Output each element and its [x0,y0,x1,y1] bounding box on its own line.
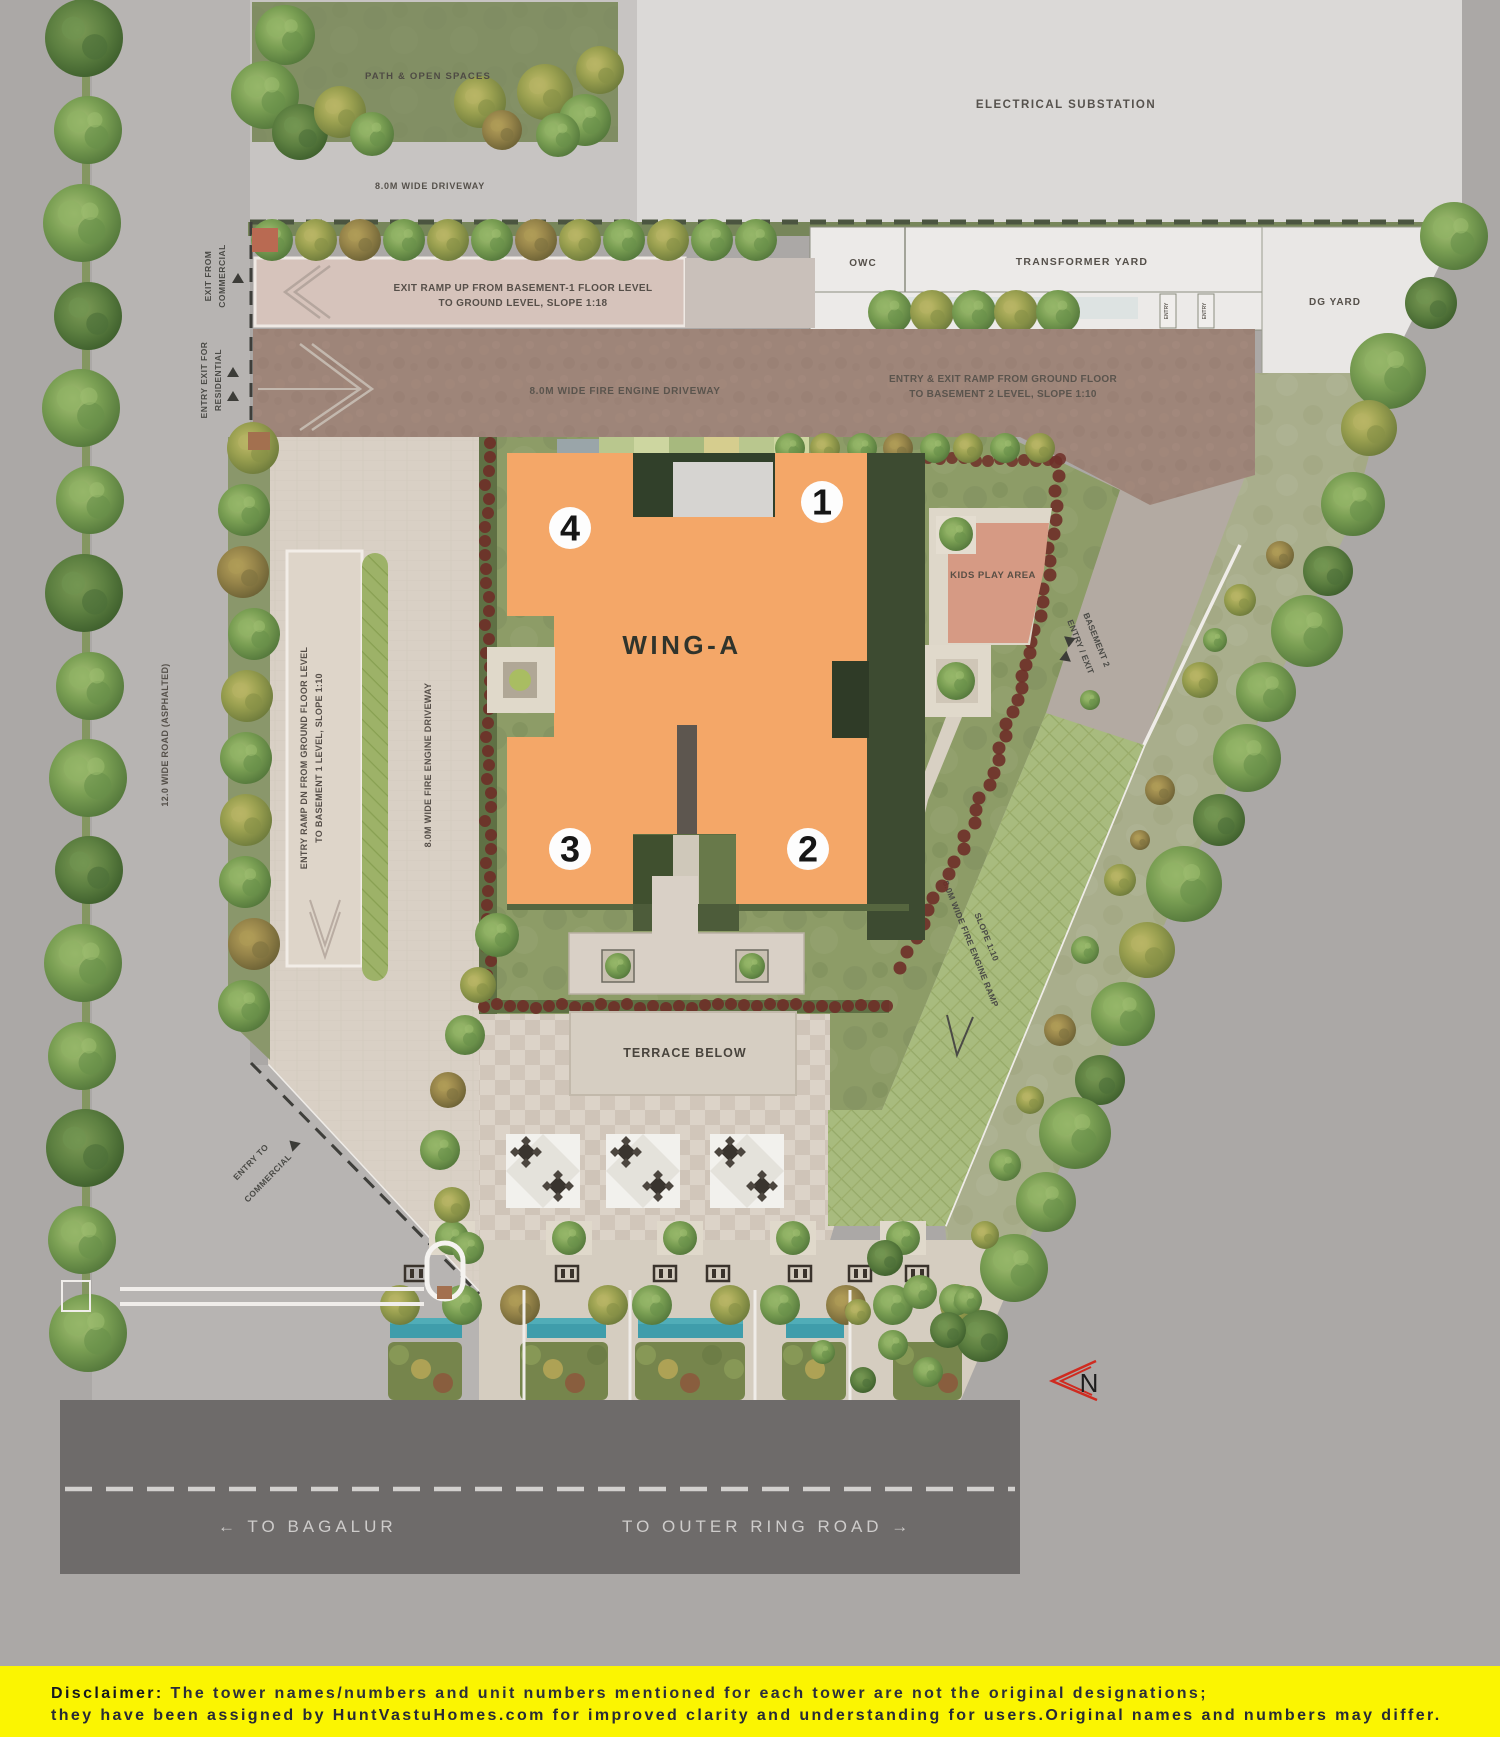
svg-text:EXIT RAMP UP FROM BASEMENT-1 F: EXIT RAMP UP FROM BASEMENT-1 FLOOR LEVEL [394,283,653,294]
svg-text:PATH & OPEN SPACES: PATH & OPEN SPACES [365,71,491,82]
svg-text:COMMERCIAL: COMMERCIAL [217,244,227,308]
svg-text:ENTRY: ENTRY [1164,302,1170,319]
svg-text:EXIT FROM: EXIT FROM [203,251,213,302]
svg-text:8.0M WIDE FIRE ENGINE DRIVEWAY: 8.0M WIDE FIRE ENGINE DRIVEWAY [423,683,433,848]
svg-text:DG YARD: DG YARD [1309,297,1361,308]
svg-text:ENTRY EXIT FOR: ENTRY EXIT FOR [199,342,209,419]
svg-text:they have been assigned by Hun: they have been assigned by HuntVastuHome… [51,1707,1442,1724]
svg-text:8.0M WIDE DRIVEWAY: 8.0M WIDE DRIVEWAY [375,181,485,191]
svg-text:TO BASEMENT 2 LEVEL, SLOPE 1:1: TO BASEMENT 2 LEVEL, SLOPE 1:10 [909,389,1097,400]
svg-text:Disclaimer: The tower names/nu: Disclaimer: The tower names/numbers and … [51,1685,1208,1702]
svg-text:TERRACE BELOW: TERRACE BELOW [623,1046,746,1060]
svg-text:TO OUTER RING ROAD →: TO OUTER RING ROAD → [622,1517,912,1536]
svg-text:N: N [1080,1368,1099,1398]
svg-text:1: 1 [812,482,832,523]
svg-text:TRANSFORMER YARD: TRANSFORMER YARD [1016,256,1148,268]
svg-text:WING-A: WING-A [622,630,741,660]
svg-text:RESIDENTIAL: RESIDENTIAL [213,349,223,411]
svg-text:TO BASEMENT 1 LEVEL, SLOPE 1:1: TO BASEMENT 1 LEVEL, SLOPE 1:10 [314,673,324,843]
svg-text:OWC: OWC [849,258,876,269]
svg-text:12.0 WIDE ROAD (ASPHALTED): 12.0 WIDE ROAD (ASPHALTED) [160,663,170,806]
svg-text:3: 3 [560,829,580,870]
svg-text:4: 4 [560,508,580,549]
svg-text:ENTRY & EXIT RAMP FROM GROUND: ENTRY & EXIT RAMP FROM GROUND FLOOR [889,374,1118,385]
svg-text:2: 2 [798,829,818,870]
svg-text:ENTRY RAMP DN FROM GROUND FLOO: ENTRY RAMP DN FROM GROUND FLOOR LEVEL [299,647,309,870]
svg-text:8.0M WIDE FIRE ENGINE DRIVEWAY: 8.0M WIDE FIRE ENGINE DRIVEWAY [530,386,721,397]
svg-text:KIDS PLAY AREA: KIDS PLAY AREA [950,570,1036,581]
svg-text:ENTRY: ENTRY [1202,302,1208,319]
svg-text:TO GROUND LEVEL, SLOPE 1:18: TO GROUND LEVEL, SLOPE 1:18 [439,298,608,309]
svg-text:ELECTRICAL SUBSTATION: ELECTRICAL SUBSTATION [976,99,1156,111]
svg-text:← TO BAGALUR: ← TO BAGALUR [218,1517,397,1536]
